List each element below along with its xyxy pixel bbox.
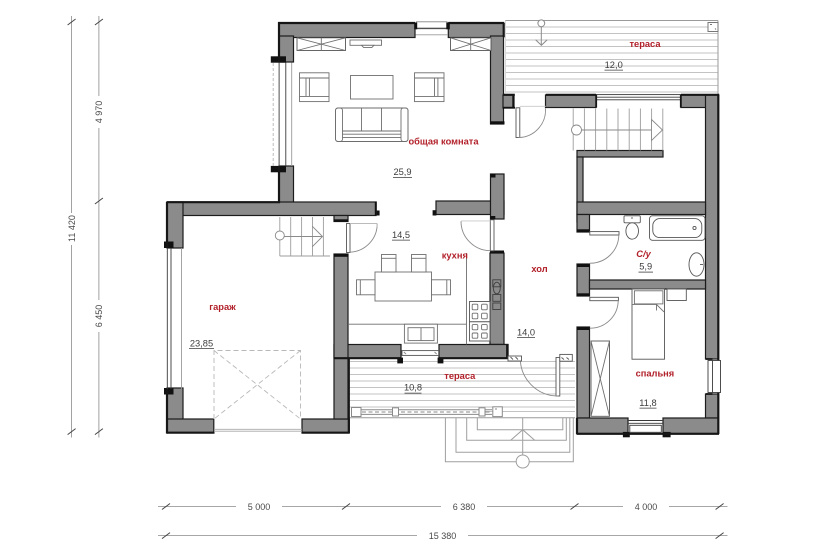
- svg-text:4 970: 4 970: [94, 101, 104, 124]
- svg-text:14,5: 14,5: [392, 230, 410, 240]
- svg-text:С/у: С/у: [636, 249, 651, 259]
- svg-text:11 420: 11 420: [67, 215, 77, 242]
- svg-text:5,9: 5,9: [639, 262, 652, 272]
- svg-text:6 380: 6 380: [453, 502, 476, 512]
- svg-text:14,0: 14,0: [517, 328, 535, 338]
- svg-text:5 000: 5 000: [248, 502, 271, 512]
- svg-text:12,0: 12,0: [605, 60, 623, 70]
- svg-text:общая комната: общая комната: [408, 136, 479, 146]
- svg-text:25,9: 25,9: [393, 167, 411, 177]
- svg-text:4 000: 4 000: [635, 502, 658, 512]
- svg-text:23,85: 23,85: [190, 339, 213, 349]
- svg-text:10,8: 10,8: [404, 382, 422, 392]
- svg-text:спальня: спальня: [636, 369, 675, 379]
- svg-text:гараж: гараж: [209, 302, 236, 312]
- svg-text:кухня: кухня: [442, 251, 468, 261]
- svg-text:6 450: 6 450: [94, 305, 104, 328]
- svg-text:15 380: 15 380: [429, 531, 457, 541]
- svg-text:11,8: 11,8: [639, 398, 656, 408]
- svg-text:тераса: тераса: [629, 39, 661, 49]
- svg-text:тераса: тераса: [444, 371, 476, 381]
- svg-text:хол: хол: [531, 264, 547, 274]
